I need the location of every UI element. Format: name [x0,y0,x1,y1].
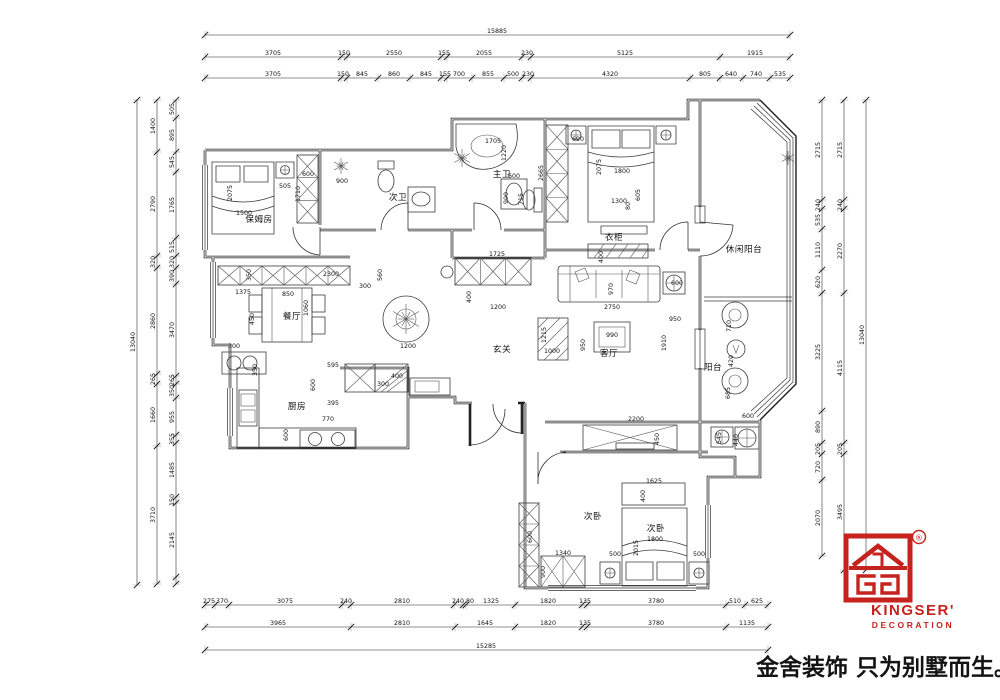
dim-label: 535 [774,71,786,78]
dim-label: 1220 [501,145,508,161]
dim-label: 620 [815,276,822,288]
dim-label: 135 [579,598,591,605]
dim-label: 770 [322,416,334,423]
dim-label: 1915 [747,50,763,57]
dim-label: 600 [310,379,317,391]
dim-label: 4115 [837,360,844,376]
dim-label: 300 [359,283,371,290]
dim-label: 300 [228,343,240,350]
dim-label: 300 [377,381,389,388]
dim-label: 1660 [150,407,157,423]
dim-label: 2200 [628,416,644,423]
dim-label: 500 [609,551,621,558]
dim-label: 2015 [633,540,640,556]
dim-label: 1625 [646,478,662,485]
dim-label: 2715 [815,142,822,158]
dim-label: 710 [726,320,733,332]
dim-label: 3780 [648,598,664,605]
dim-label: 1765 [169,197,176,213]
dim-label: 3470 [169,322,176,338]
dim-label: 3075 [277,598,293,605]
dim-label: 1705 [485,138,501,145]
dim-label: 625 [751,598,763,605]
brand-name: KINGSER' [828,602,998,619]
dim-label: 845 [356,71,368,78]
dim-label: 510 [729,598,741,605]
dim-label: 1375 [235,289,251,296]
dim-label: 13040 [859,325,866,345]
room-label: 阳台 [704,361,722,373]
dim-label: 860 [388,71,400,78]
dim-label: 715 [518,193,525,205]
dim-label: 1000 [544,348,560,355]
dim-label: 1800 [614,168,630,175]
dim-label: 240 [340,598,352,605]
dim-label: 950 [580,339,587,351]
dim-label: 450 [654,433,661,445]
dim-label: 1400 [150,118,157,134]
dim-label: 240 [837,199,844,211]
dim-label: 720 [815,461,822,473]
dim-label: 535 [815,214,822,226]
dim-label: 1135 [739,620,755,627]
dim-label: 850 [282,291,294,298]
dim-label: 400 [391,373,403,380]
dim-label: 240 [815,199,822,211]
dim-label: 400 [640,490,647,502]
dim-label: 150 [337,71,349,78]
dim-label: 320 [150,256,157,268]
dim-label: 395 [327,400,339,407]
room-label: 主卫 [493,168,511,180]
dim-label: 5125 [617,50,633,57]
dim-label: 600 [302,171,314,178]
dim-label: 2665 [538,165,545,181]
dim-label: 505 [169,103,176,115]
dim-label: 1110 [815,242,822,258]
dim-label: 1485 [169,462,176,478]
dim-label: 275 [203,598,215,605]
dim-label: 740 [750,71,762,78]
dim-label: 970 [608,283,615,295]
dim-label: 2550 [386,50,402,57]
room-label: 保姆房 [245,213,272,225]
dim-label: 370 [216,598,228,605]
dim-label: 3705 [265,50,281,57]
dim-label: 1645 [477,620,493,627]
dim-label: 1725 [489,251,505,258]
dim-label: 15885 [487,28,507,35]
dim-label: 2810 [394,598,410,605]
dim-label: 505 [279,183,291,190]
dim-label: 1710 [295,186,302,202]
room-label: 次卧 [647,522,665,534]
dim-label: 900 [503,192,510,204]
dim-label: 400 [466,291,473,303]
room-label: 次卧 [584,510,602,522]
dim-label: 895 [169,129,176,141]
dim-label: 205 [815,443,822,455]
dim-label: 2750 [604,304,620,311]
dim-label: 1060 [303,300,310,316]
dim-label: 80 [625,202,632,210]
dim-label: 3710 [150,507,157,523]
dim-label: 805 [699,71,711,78]
dim-label: 955 [169,411,176,423]
dim-label: 390 [169,270,176,282]
dim-label: 2860 [150,313,157,329]
floor-plan-sheet: 1588537051502550155205523051251915370515… [0,0,1000,700]
dim-label: 1200 [400,343,416,350]
dim-label: 2300 [323,271,339,278]
registered-mark-icon: ® [916,534,922,543]
dim-label: 545 [169,156,176,168]
dim-label: 15285 [476,643,496,650]
dim-label: 2055 [476,50,492,57]
room-label: 次卫 [389,191,407,203]
dim-label: 500 [693,551,705,558]
dim-label: 230 [522,71,534,78]
dim-label: 155 [438,50,450,57]
room-label: 玄关 [493,343,511,355]
dim-label: 350 [252,364,259,376]
room-label: 厨房 [288,400,306,412]
dim-label: 3965 [270,620,286,627]
dim-label: 640 [725,71,737,78]
dim-label: 205 [837,443,844,455]
dim-label: 13040 [130,332,137,352]
dim-label: 990 [606,332,618,339]
dim-label: 560 [377,269,384,281]
dim-label: 3225 [815,344,822,360]
dim-label: 2075 [596,159,603,175]
dim-label: 265 [150,373,157,385]
dim-label: 320 [169,256,176,268]
dim-label: 1325 [483,598,499,605]
dim-label: 355 [169,433,176,445]
dim-label: 350 [169,385,176,397]
dim-label: 440 [733,434,740,446]
dim-label: 3495 [837,504,844,520]
room-label: 餐厅 [283,311,301,322]
dim-label: 2715 [837,142,844,158]
dim-label: 400 [598,251,605,263]
dim-label: 265 [169,374,176,386]
dim-label: 685 [725,387,732,399]
dim-label: 3780 [648,620,664,627]
dim-label: 500 [507,71,519,78]
dim-label: 700 [453,71,465,78]
dim-label: 1200 [490,304,506,311]
dim-label: 2145 [169,532,176,548]
dim-label: 420 [728,355,735,367]
dim-label: 1820 [540,620,556,627]
brand-subtitle: DECORATION [828,620,998,630]
dim-label: 150 [338,50,350,57]
dim-label: 450 [249,313,256,325]
dim-label: 230 [521,50,533,57]
dim-label: 515 [169,241,176,253]
dim-label: 900 [336,178,348,185]
dim-label: 605 [635,189,642,201]
room-label: 客厅 [600,347,618,359]
dim-label: 2790 [150,196,157,212]
text-labels: 1588537051502550155205523051251915370515… [130,28,866,650]
dim-label: 600 [283,429,290,441]
dim-label: 855 [482,71,494,78]
room-label: 休闲阳台 [726,243,762,255]
dim-label: 2070 [815,510,822,526]
dim-label: 600 [742,413,754,420]
dim-label: 1800 [647,536,663,543]
dim-label: 80 [466,598,474,605]
brand-slogan: 金舍装饰 只为别墅而生。 [756,648,1000,682]
dim-label: 3705 [265,71,281,78]
dim-label: 2270 [837,243,844,259]
dim-label: 1910 [661,335,668,351]
dim-label: 155 [439,71,451,78]
dim-label: 595 [327,362,339,369]
room-label: 衣柜 [605,231,623,243]
dim-label: 950 [669,316,681,323]
dim-label: 150 [169,494,176,506]
dim-label: 1215 [541,327,548,343]
dim-label: 4320 [602,71,618,78]
dim-label: 845 [420,71,432,78]
dim-label: 240 [452,598,464,605]
dim-label: 2810 [394,620,410,627]
dim-label: 135 [579,620,591,627]
dim-label: 2075 [227,185,234,201]
dim-label: 1820 [540,598,556,605]
dim-label: 890 [815,421,822,433]
